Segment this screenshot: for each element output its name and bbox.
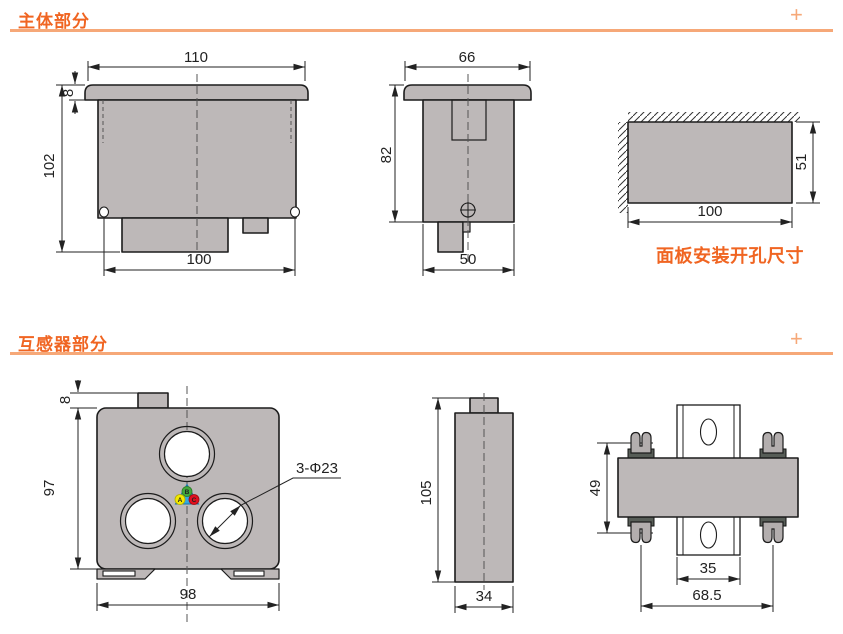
ct-mount-drawing: 49 35 68.5 [593,385,843,630]
main-side-drawing: 66 82 50 [385,48,550,288]
rail-slot-hole [701,419,717,445]
main-front-drawing: 110 8 102 100 [45,48,345,288]
dim-label-tab-height: 8 [57,396,74,404]
mount-screw-hole [291,207,300,217]
hatch-left [618,122,628,213]
section-divider [10,352,833,355]
dim-label-clip-span-v: 49 [587,480,604,497]
dim-label-cutout-height: 51 [793,154,810,171]
left-foot-slot [103,571,135,576]
dim-label-body-height: 97 [41,480,58,497]
mount-clip [628,433,654,459]
hatch-top [628,112,800,122]
phase-b-label: B [185,489,190,496]
dim-label-total-height: 102 [41,153,58,178]
dim-label-cutout-width: 100 [697,203,722,220]
dim-label-bottom-width: 34 [476,588,493,605]
mount-screw-hole [100,207,109,217]
mount-clip [760,517,786,543]
expand-plus-icon[interactable]: + [790,328,803,350]
panel-cutout-drawing: 51 100 [612,95,843,245]
dim-label-clip-span-h: 68.5 [692,587,721,604]
bottom-small-block [243,218,268,233]
dim-label-height: 82 [378,147,395,164]
rail-slot-hole [701,522,717,548]
dim-label-bezel-height: 8 [60,89,77,97]
panel-cutout-caption: 面板安装开孔尺寸 [656,242,804,268]
dim-label-rail-width: 35 [700,560,717,577]
mount-clip [628,517,654,543]
phase-a-label: A [178,497,183,504]
cutout-rect [628,122,792,203]
dim-label-bottom-width: 50 [460,251,477,268]
dim-label-bottom-width: 100 [186,251,211,268]
bottom-terminal [438,222,463,252]
dim-label-top-width: 110 [184,49,208,66]
mount-clip [760,433,786,459]
ct-side-drawing: 105 34 [420,383,550,630]
expand-plus-icon[interactable]: + [790,4,803,26]
hole-diameter-label: 3-Φ23 [296,460,338,477]
dim-label-bottom-width: 98 [180,586,197,603]
section-divider [10,29,833,32]
ct-mount-body [618,458,798,517]
top-tab [138,393,168,408]
bottom-step [463,222,470,232]
phase-hole [165,432,210,477]
bottom-terminal-block [122,218,228,252]
right-foot-slot [234,571,264,576]
spec-drawings-page: { "colors": { "accent_orange": "#f06522"… [0,0,843,634]
ct-front-drawing: B A C 8 97 98 3-Φ23 [40,378,360,630]
dim-label-top-width: 66 [459,49,476,66]
dim-label-total-height: 105 [418,480,435,505]
phase-hole [126,499,171,544]
phase-c-label: C [192,497,197,504]
